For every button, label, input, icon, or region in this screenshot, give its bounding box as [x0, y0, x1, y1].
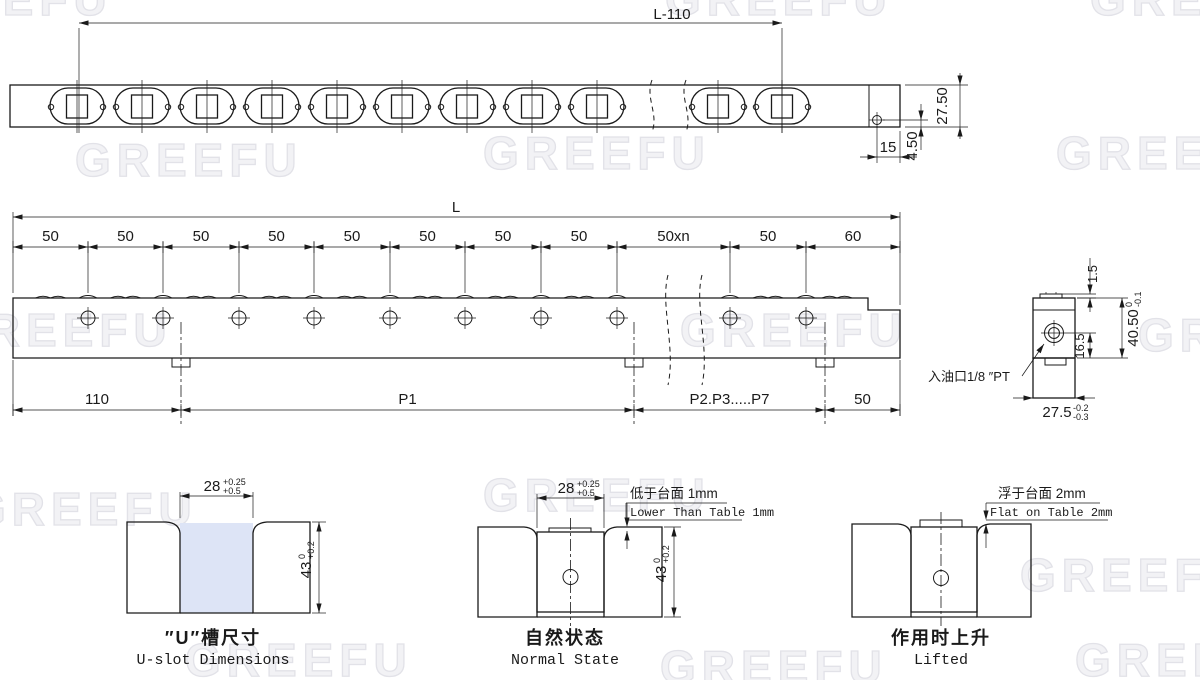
dim-label: 50	[42, 228, 59, 245]
dim-label-hole-depth: 16.5	[1072, 333, 1087, 358]
oil-inlet-label: 入油口1/8 ″PT	[928, 369, 1010, 384]
dim-label: 50	[268, 228, 285, 245]
break-line	[700, 275, 705, 385]
slot-side-hole	[308, 104, 313, 109]
dim-arrow	[816, 407, 826, 412]
slot-side-hole	[490, 104, 495, 109]
dim-label: 50	[495, 228, 512, 245]
dim-arrow	[79, 244, 89, 249]
detail-title-cn: 自然状态	[525, 627, 605, 648]
dim-label-slot-depth-tol-lower: +0.2	[306, 541, 316, 559]
dim-label: P2.P3.....P7	[689, 391, 769, 408]
dim-arrow	[163, 244, 173, 249]
slot-side-hole	[741, 104, 746, 109]
slot-side-hole	[373, 104, 378, 109]
dim-label-body-width-value: 27.5	[1042, 404, 1071, 421]
slot-side-hole	[230, 104, 235, 109]
dim-label-slot-depth-value: 43	[653, 566, 670, 583]
detail-title-en: Lifted	[914, 652, 968, 669]
dim-label: P1	[398, 391, 416, 408]
dim-label-body-width: 27.5-0.2-0.3	[1042, 403, 1088, 422]
dim-arrow	[230, 244, 240, 249]
dim-arrow	[671, 608, 676, 618]
rail-side-view-body	[13, 298, 900, 358]
dim-arrow	[390, 244, 400, 249]
dim-arrow	[730, 244, 740, 249]
dim-arrow	[314, 244, 324, 249]
detail-normal: 低于台面 1mm Lower Than Table 1mm 自然状态 Norma…	[478, 486, 774, 669]
side-view: L 505050505050505050xn5060 110P1P2.P3...…	[13, 199, 900, 425]
slot-side-hole	[295, 104, 300, 109]
dim-arrow	[1075, 395, 1085, 400]
dim-arrow	[806, 244, 816, 249]
dim-arrow	[172, 407, 182, 412]
dim-label-height: 27.50	[934, 87, 951, 125]
dim-arrow	[79, 20, 89, 25]
dim-label: 50	[760, 228, 777, 245]
drawing-sheet: GREEFUGREEFUGREEFUGREEFUGREEFUGREEFUGREE…	[0, 0, 1200, 680]
dim-label: 50	[193, 228, 210, 245]
slot-side-hole	[100, 104, 105, 109]
slot-side-hole	[165, 104, 170, 109]
dim-label-slot-width-value: 28	[558, 480, 575, 497]
dim-arrow	[239, 244, 249, 249]
note-cn: 低于台面 1mm	[630, 486, 718, 501]
dim-arrow	[1087, 298, 1092, 308]
dim-label-slot-width-tol-lower: +0.5	[223, 486, 241, 496]
slot-side-hole	[425, 104, 430, 109]
uslot-void	[180, 523, 253, 613]
dim-arrow	[541, 244, 551, 249]
slot-side-hole	[503, 104, 508, 109]
dim-label: 50	[344, 228, 361, 245]
dim-arrow	[456, 244, 466, 249]
slot-side-hole	[113, 104, 118, 109]
dim-arrow	[625, 407, 635, 412]
crown-bumps	[36, 242, 853, 298]
slot-side-hole	[555, 104, 560, 109]
slot-side-hole	[805, 104, 810, 109]
slot-side-hole	[620, 104, 625, 109]
rail-top-view-body	[10, 85, 900, 127]
slot-group	[48, 80, 810, 133]
dim-label: 50	[854, 391, 871, 408]
dim-arrow	[617, 244, 627, 249]
detail-title-cn: ″U″槽尺寸	[165, 627, 261, 648]
dim-arrow	[180, 493, 190, 498]
dim-arrow	[891, 244, 901, 249]
dim-label: 60	[845, 228, 862, 245]
dim-label: 50	[117, 228, 134, 245]
dim-label-slot-depth: 430+0.2	[297, 541, 316, 578]
technical-drawing: L-110 27.50 4.50 15	[0, 0, 1200, 680]
table-block	[852, 524, 911, 617]
dim-label-length: L-110	[653, 6, 690, 23]
dim-label-body-height-value: 40.50	[1125, 309, 1142, 347]
dim-arrow	[316, 522, 321, 532]
dim-label-slot-width-tol-lower: +0.5	[577, 488, 595, 498]
detail-title-en: Normal State	[511, 652, 619, 669]
break-line	[666, 275, 671, 385]
dim-arrow	[305, 244, 315, 249]
slot-side-hole	[753, 104, 758, 109]
detail-lifted: 浮于台面 2mm Flat on Table 2mm 作用时上升 Lifted	[852, 486, 1112, 669]
dim-arrow	[891, 407, 901, 412]
slot-side-hole	[48, 104, 53, 109]
dim-label-slot-depth: 430+0.2	[652, 545, 671, 582]
dim-label-hole-end: 15	[880, 139, 897, 156]
dim-arrow	[957, 127, 962, 137]
note-en: Lower Than Table 1mm	[630, 506, 774, 520]
slot-side-hole	[360, 104, 365, 109]
dim-arrow	[797, 244, 807, 249]
dim-label-body-height-tol-lower: -0.1	[1133, 291, 1143, 307]
dim-arrow	[13, 407, 23, 412]
dim-arrow	[154, 244, 164, 249]
dim-arrow	[608, 244, 618, 249]
dim-arrow	[721, 244, 731, 249]
section-tab	[1045, 358, 1066, 365]
dim-label-slot-width: 28+0.25+0.5	[558, 479, 600, 498]
dim-arrow	[1024, 395, 1034, 400]
dim-arrow	[316, 604, 321, 614]
break-line	[650, 80, 654, 132]
dim-arrow	[1087, 333, 1092, 343]
slot-side-hole	[568, 104, 573, 109]
dim-arrow	[983, 511, 988, 521]
position-dimension-group: 110P1P2.P3.....P750	[13, 391, 900, 416]
hole-group	[77, 307, 817, 329]
section-view: 1.5 16.5 入油口1/8 ″PT	[928, 258, 1128, 398]
detail-title-en: U-slot Dimensions	[136, 652, 289, 669]
dim-arrow	[624, 518, 629, 528]
table-block	[127, 522, 180, 613]
dim-arrow	[1036, 344, 1044, 353]
slot-side-hole	[178, 104, 183, 109]
dim-arrow	[891, 214, 901, 219]
tolerance-labels: 40.500-0.127.5-0.2-0.328+0.25+0.5430+0.2…	[204, 291, 1143, 582]
dim-arrow	[671, 527, 676, 537]
dim-label: 50	[571, 228, 588, 245]
dim-arrow	[634, 407, 644, 412]
dim-arrow	[1119, 349, 1124, 359]
dim-label: 50	[419, 228, 436, 245]
dim-label-slot-depth-tol-lower: +0.2	[661, 545, 671, 563]
dim-arrow	[957, 76, 962, 86]
detail-title-cn: 作用时上升	[891, 627, 991, 648]
dim-label: 50xn	[657, 228, 690, 245]
slot-side-hole	[438, 104, 443, 109]
dim-label-overall: L	[452, 199, 460, 216]
dim-label-crown: 1.5	[1085, 265, 1100, 283]
dim-arrow	[465, 244, 475, 249]
top-view: L-110 27.50 4.50 15	[10, 6, 968, 163]
detail-uslot: ″U″槽尺寸 U-slot Dimensions	[127, 492, 326, 669]
dim-arrow	[88, 244, 98, 249]
dim-arrow	[1087, 349, 1092, 359]
dim-arrow	[825, 407, 835, 412]
dim-label-body-height: 40.500-0.1	[1124, 291, 1143, 346]
dim-arrow	[773, 20, 783, 25]
note-cn: 浮于台面 2mm	[998, 486, 1086, 501]
bottom-tab-group	[172, 322, 834, 425]
dim-arrow	[537, 495, 547, 500]
dim-label-slot-width-value: 28	[204, 478, 221, 495]
dim-arrow	[13, 244, 23, 249]
dim-arrow	[244, 493, 254, 498]
section-stem	[1033, 358, 1075, 398]
slot-side-hole	[243, 104, 248, 109]
slot-side-hole	[689, 104, 694, 109]
table-block	[977, 524, 1031, 617]
note-en: Flat on Table 2mm	[990, 506, 1112, 520]
dim-label-slot-depth-value: 43	[298, 562, 315, 579]
break-line	[684, 80, 688, 132]
dim-arrow	[918, 111, 923, 121]
dim-arrow	[595, 495, 605, 500]
dim-arrow	[1087, 285, 1092, 295]
dim-arrow	[13, 214, 23, 219]
table-block	[478, 527, 537, 617]
dim-arrow	[381, 244, 391, 249]
dim-arrow	[624, 531, 629, 541]
dim-arrow	[868, 154, 878, 159]
dim-label-body-width-tol-lower: -0.3	[1073, 412, 1089, 422]
dim-arrow	[532, 244, 542, 249]
dim-arrow	[181, 407, 191, 412]
dim-label: 110	[85, 391, 109, 408]
dim-label-slot-width: 28+0.25+0.5	[204, 477, 246, 496]
rail-section	[911, 527, 977, 612]
